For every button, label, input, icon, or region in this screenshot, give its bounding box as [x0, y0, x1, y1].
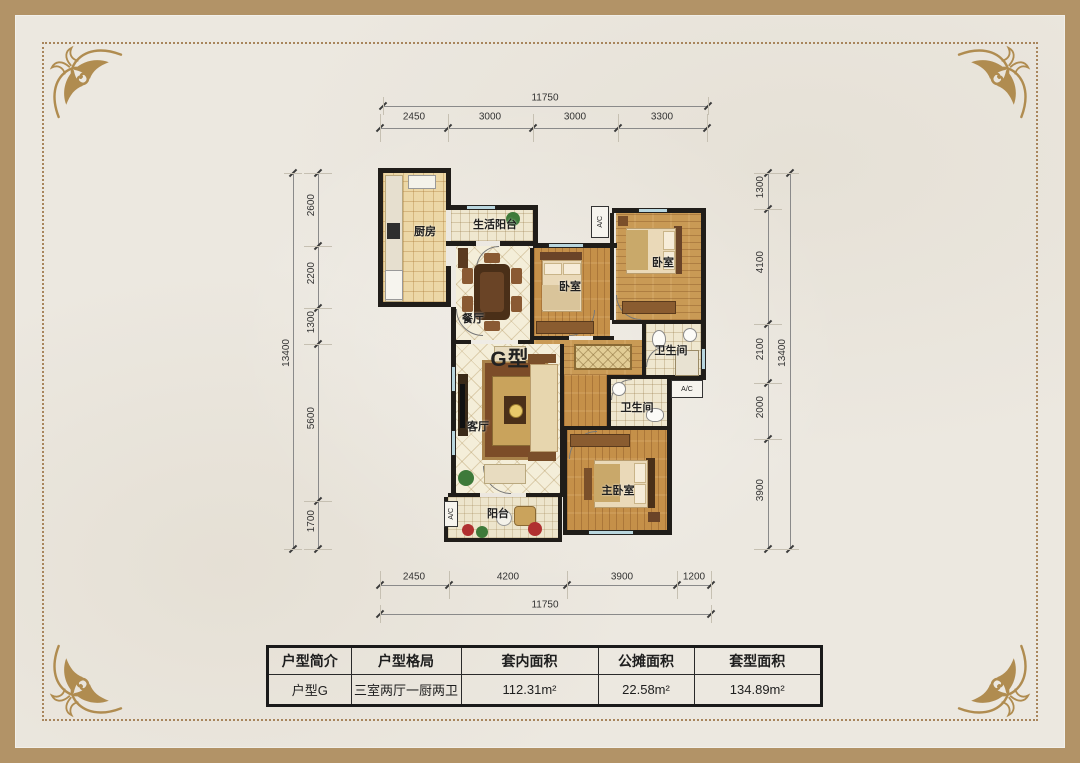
room-label-bath-lower: 卫生间 [621, 399, 654, 415]
ac-label: A/C [681, 386, 693, 393]
side-table [528, 354, 556, 363]
room-label-master: 主卧室 [602, 482, 635, 498]
table-header: 套型面积 [694, 647, 821, 675]
window [451, 430, 456, 456]
corner-ornament-top-right [956, 44, 1032, 120]
dim-label: 11750 [531, 93, 558, 104]
dim-label: 2000 [755, 396, 766, 418]
chair [484, 253, 500, 263]
balcony-rail [558, 497, 562, 542]
table-header: 套内面积 [461, 647, 598, 675]
room-label-living: 客厅 [467, 418, 489, 434]
blanket [626, 230, 648, 270]
sofa [530, 364, 558, 452]
dim-label: 2100 [755, 338, 766, 360]
pillow [544, 263, 562, 275]
window [638, 208, 668, 213]
pillow [634, 463, 646, 483]
wall [612, 320, 706, 324]
ac-unit-balcony: A/C [444, 501, 458, 527]
unit-info-table: 户型简介 户型格局 套内面积 公摊面积 套型面积 户型G 三室两厅一厨两卫 11… [267, 646, 822, 706]
pillow [663, 231, 675, 250]
dim-label: 5600 [306, 407, 317, 429]
dim-label: 13400 [281, 339, 292, 367]
armchair [484, 464, 526, 484]
fridge [385, 270, 403, 300]
dresser [622, 301, 676, 314]
chair [511, 268, 522, 284]
pillow [563, 263, 581, 275]
bed-headboard [540, 252, 582, 260]
dimension-line-right-segments [768, 173, 769, 549]
corner-ornament-bottom-right [956, 643, 1032, 719]
wall [610, 213, 614, 320]
nightstand [618, 216, 628, 226]
stove [387, 223, 400, 239]
dimension-line-top-segments [380, 128, 707, 129]
wall [378, 168, 451, 173]
dim-label: 3000 [479, 112, 501, 123]
inner-area-cell: 112.31m² [461, 675, 598, 706]
window [548, 243, 584, 248]
dimension-line-right-total [790, 173, 791, 549]
window [451, 366, 456, 392]
plant [458, 470, 474, 486]
dimension-line-bottom-total [380, 614, 711, 615]
dim-label: 4100 [755, 251, 766, 273]
dim-label: 2600 [306, 194, 317, 216]
wall [451, 340, 471, 344]
room-label-bath-top: 卫生间 [655, 342, 688, 358]
floorplan-page: 11750 2450 3000 3000 3300 2450 4200 3900… [0, 0, 1080, 763]
dim-label: 11750 [531, 600, 558, 611]
wardrobe [536, 321, 594, 334]
ac-unit-right: A/C [671, 380, 703, 398]
table-decor [509, 404, 523, 418]
chair [511, 296, 522, 312]
wall [451, 307, 456, 497]
dim-label: 3900 [611, 572, 633, 583]
chair [462, 268, 473, 284]
dim-label: 1700 [306, 510, 317, 532]
dim-label: 1300 [755, 176, 766, 198]
wall [560, 344, 564, 493]
table-header: 户型简介 [268, 647, 351, 675]
dim-label: 3900 [755, 479, 766, 501]
table-header: 公摊面积 [598, 647, 694, 675]
wall [448, 493, 480, 497]
wall [446, 266, 451, 307]
corner-ornament-top-left [48, 44, 124, 120]
room-label-kitchen: 厨房 [414, 223, 436, 239]
room-label-bedroom-right: 卧室 [652, 254, 674, 270]
pillow [634, 484, 646, 504]
wall [607, 377, 611, 430]
wall [446, 241, 476, 246]
dim-label: 2450 [403, 572, 425, 583]
table-header: 户型格局 [351, 647, 461, 675]
chair [484, 321, 500, 331]
tv [460, 384, 465, 428]
nightstand [648, 512, 660, 522]
room-label-life-balcony: 生活阳台 [473, 216, 517, 232]
wall [446, 168, 451, 210]
dim-label: 2450 [403, 112, 425, 123]
window [701, 348, 706, 370]
ac-unit-top: A/C [591, 206, 609, 238]
wall [607, 375, 667, 379]
total-area-cell: 134.89m² [694, 675, 821, 706]
room-label-balcony: 阳台 [487, 505, 509, 521]
dim-label: 1300 [306, 311, 317, 333]
window [588, 530, 634, 535]
sideboard [458, 248, 468, 268]
balcony-rail [444, 538, 562, 542]
wall [667, 426, 672, 535]
dim-label: 3300 [651, 112, 673, 123]
dim-label: 1200 [683, 572, 705, 583]
window [466, 205, 496, 210]
unit-layout-cell: 三室两厅一厨两卫 [351, 675, 461, 706]
shared-area-cell: 22.58m² [598, 675, 694, 706]
table-row: 户型G 三室两厅一厨两卫 112.31m² 22.58m² 134.89m² [268, 675, 821, 706]
hall-rug [574, 344, 632, 370]
dining-table-top [480, 272, 504, 312]
sink [612, 382, 626, 396]
dimension-line-top-total [383, 106, 708, 107]
dim-label: 2200 [306, 262, 317, 284]
corridor-floor [564, 375, 607, 430]
flowers [528, 522, 542, 536]
plant [476, 526, 488, 538]
bench [584, 468, 592, 500]
flowers [462, 524, 474, 536]
wall [533, 336, 569, 340]
side-table [528, 452, 556, 461]
dim-label: 4200 [497, 572, 519, 583]
ac-label: A/C [448, 508, 455, 520]
wall [530, 248, 534, 340]
unit-type-label: G型 [490, 343, 529, 373]
wall [378, 168, 383, 307]
sink [683, 328, 697, 342]
wall [593, 336, 614, 340]
dimension-line-bottom-segments [380, 585, 711, 586]
corner-ornament-bottom-left [48, 643, 124, 719]
room-label-dining: 餐厅 [462, 310, 484, 326]
ac-label: A/C [597, 216, 604, 228]
dimension-line-left-total [293, 173, 294, 549]
unit-type-cell: 户型G [268, 675, 351, 706]
table-header-row: 户型简介 户型格局 套内面积 公摊面积 套型面积 [268, 647, 821, 675]
dresser [570, 434, 630, 447]
dim-label: 13400 [777, 339, 788, 367]
dim-label: 3000 [564, 112, 586, 123]
wall [378, 302, 451, 307]
dimension-line-left-segments [318, 173, 319, 549]
floor-plan: A/C A/C A/C [378, 168, 711, 550]
room-label-bedroom-mid: 卧室 [559, 278, 581, 294]
kitchen-sink [408, 175, 436, 189]
wall [642, 324, 646, 375]
wall [563, 426, 671, 430]
